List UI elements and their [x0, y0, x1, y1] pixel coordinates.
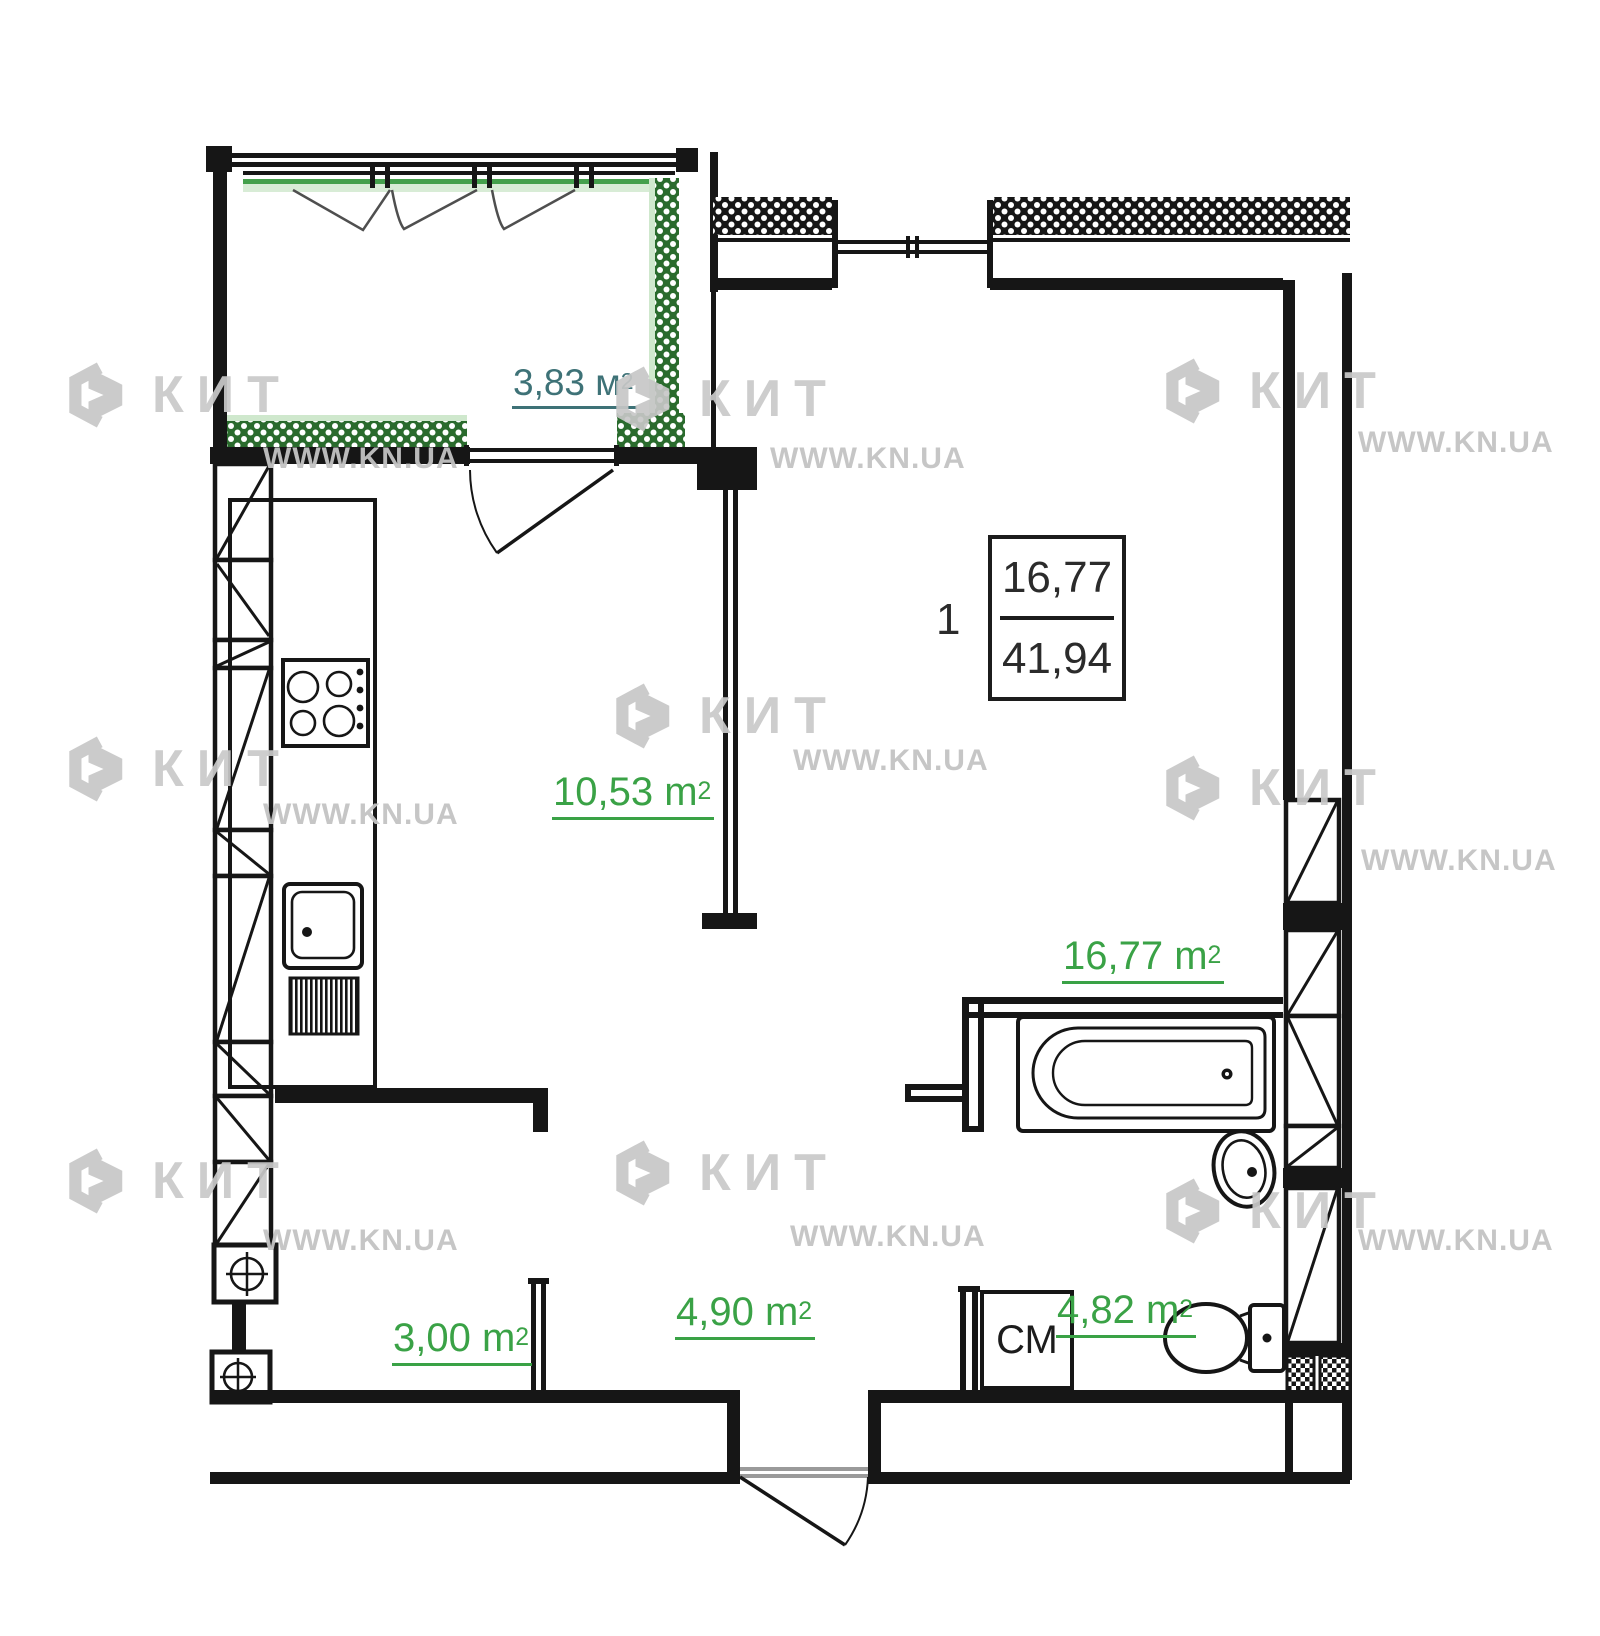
right-wall-and-shafts — [1283, 273, 1352, 1480]
watermark-brand-text: КИТ — [699, 690, 839, 742]
watermark-brand-text: КИТ — [1249, 762, 1389, 814]
kit-logo-icon — [1163, 1178, 1223, 1244]
window-casement-icon — [293, 190, 390, 230]
watermark-brand-text: КИТ — [699, 373, 839, 425]
window-casement-icon — [392, 190, 477, 229]
watermark-site-text: WWW.KN.UA — [790, 1222, 986, 1252]
kit-logo-icon — [66, 1148, 126, 1214]
room-area-label-bathroom: 4,82 m2 — [1056, 1290, 1196, 1338]
watermark-kit: КИТ — [66, 736, 292, 802]
apartment-room-count: 1 — [936, 598, 960, 642]
watermark-site-text: WWW.KN.UA — [1358, 428, 1554, 458]
balcony-door-leaf — [497, 470, 613, 553]
entrance-door-swing — [845, 1477, 868, 1545]
apartment-area-box: 16,77 41,94 — [988, 535, 1126, 701]
kitchen-structure — [210, 445, 757, 1087]
entrance-door-leaf — [740, 1477, 845, 1545]
watermark-brand-text: КИТ — [152, 743, 292, 795]
window-casement-icon — [492, 190, 575, 229]
kit-logo-icon — [613, 1140, 673, 1206]
watermark-kit: КИТ — [1163, 1178, 1389, 1244]
kit-logo-icon — [613, 683, 673, 749]
watermark-kit: КИТ — [1163, 358, 1389, 424]
kitchen-sink — [284, 884, 362, 1034]
watermark-brand-text: КИТ — [152, 369, 292, 421]
watermark-site-text: WWW.KN.UA — [263, 444, 459, 474]
balcony-door-swing — [470, 470, 497, 553]
watermark-kit: КИТ — [1163, 755, 1389, 821]
kit-logo-icon — [1163, 755, 1223, 821]
stove — [283, 660, 368, 746]
watermark-kit: КИТ — [66, 1148, 292, 1214]
watermark-site-text: WWW.KN.UA — [770, 444, 966, 474]
watermark-brand-text: КИТ — [1249, 365, 1389, 417]
bottom-wall — [210, 1390, 1350, 1545]
kit-logo-icon — [1163, 358, 1223, 424]
living-room-window — [832, 200, 993, 288]
room-area-label-kitchen: 10,53 m2 — [552, 772, 714, 820]
washing-machine-label: СМ — [982, 1292, 1072, 1388]
watermark-site-text: WWW.KN.UA — [793, 746, 989, 776]
bathtub — [1018, 1017, 1274, 1131]
watermark-site-text: WWW.KN.UA — [1361, 846, 1557, 876]
room-area-label-corridor: 4,90 m2 — [675, 1292, 815, 1340]
watermark-kit: КИТ — [613, 683, 839, 749]
watermark-kit: КИТ — [66, 362, 292, 428]
watermark-brand-text: КИТ — [699, 1147, 839, 1199]
kit-logo-icon — [66, 362, 126, 428]
watermark-kit: КИТ — [613, 366, 839, 432]
watermark-site-text: WWW.KN.UA — [263, 800, 459, 830]
kit-logo-icon — [66, 736, 126, 802]
watermark-site-text: WWW.KN.UA — [1358, 1226, 1554, 1256]
kit-logo-icon — [613, 366, 673, 432]
watermark-site-text: WWW.KN.UA — [263, 1226, 459, 1256]
basin-drain — [1247, 1167, 1257, 1177]
watermark-kit: КИТ — [613, 1140, 839, 1206]
apartment-living-area: 16,77 — [992, 539, 1122, 616]
floor-plan-canvas: .w{fill:#161616;} .cell{fill:#fff;stroke… — [0, 0, 1600, 1636]
left-exterior-wall — [215, 464, 271, 1245]
watermark-brand-text: КИТ — [152, 1155, 292, 1207]
room-area-label-living: 16,77 m2 — [1062, 936, 1224, 984]
apartment-total-area: 41,94 — [992, 620, 1122, 697]
room-area-label-hall: 3,00 m2 — [392, 1318, 532, 1366]
